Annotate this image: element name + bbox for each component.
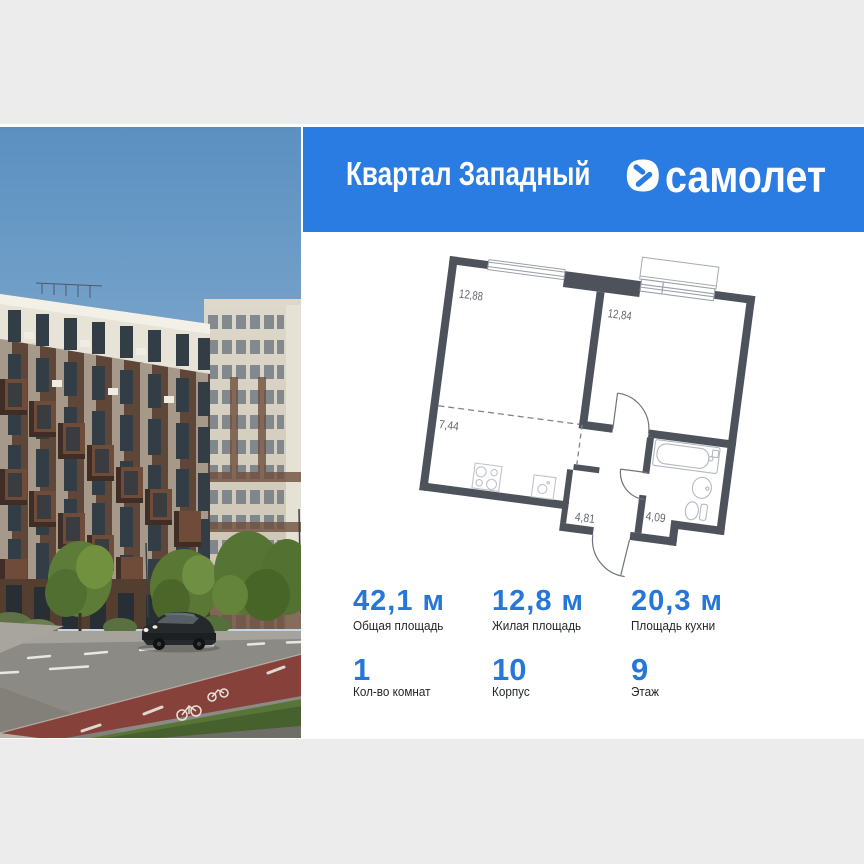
- svg-text:4,81: 4,81: [574, 510, 596, 527]
- svg-text:12,84: 12,84: [607, 306, 633, 323]
- svg-text:4,09: 4,09: [645, 509, 667, 526]
- svg-text:12,88: 12,88: [458, 287, 484, 304]
- svg-text:7,44: 7,44: [438, 417, 460, 434]
